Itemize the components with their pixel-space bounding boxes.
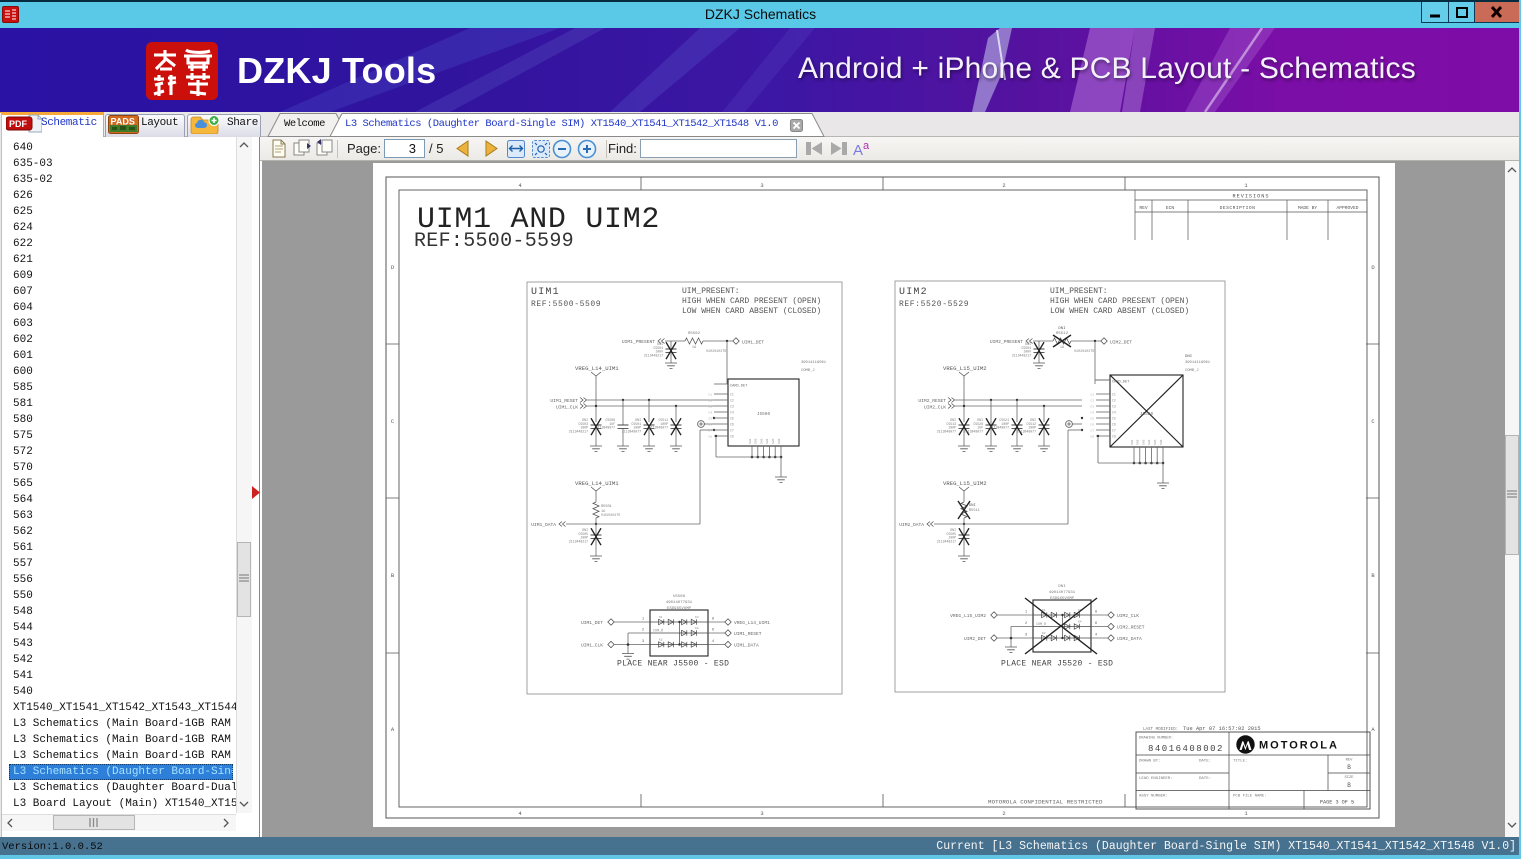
svg-text:K4: K4	[1078, 621, 1082, 624]
svg-text:COMB_J: COMB_J	[1185, 369, 1199, 373]
svg-text:SH5: SH5	[1154, 439, 1157, 445]
svg-text:SH1: SH1	[1131, 439, 1134, 445]
svg-text:39014119061: 39014119061	[1185, 361, 1211, 365]
svg-text:K2: K2	[1042, 632, 1046, 635]
svg-text:D: D	[1371, 264, 1375, 271]
svg-text:C6: C6	[730, 423, 734, 427]
svg-text:Tue Apr 07 16:57:02 2015: Tue Apr 07 16:57:02 2015	[1183, 726, 1261, 732]
svg-text:TITLE:: TITLE:	[1233, 760, 1247, 764]
svg-text:a: a	[863, 140, 870, 152]
svg-text:DNI: DNI	[1058, 585, 1065, 589]
svg-text:2: 2	[1025, 622, 1028, 626]
svg-text:MADE BY: MADE BY	[1298, 205, 1318, 211]
svg-text:2113948077: 2113948077	[964, 429, 983, 433]
svg-text:1: 1	[1244, 810, 1248, 817]
svg-text:B: B	[1347, 764, 1351, 771]
svg-text:C1: C1	[1112, 393, 1116, 397]
svg-text:2: 2	[1002, 810, 1005, 817]
svg-text:K2: K2	[659, 639, 663, 642]
svg-text:C2: C2	[1112, 399, 1116, 403]
svg-text:3: 3	[1025, 634, 1028, 638]
svg-text:2113948077: 2113948077	[990, 426, 1009, 430]
svg-text:J5520: J5520	[1140, 412, 1154, 417]
svg-text:UIM1_DET: UIM1_DET	[742, 340, 764, 346]
svg-text:ECN: ECN	[1166, 205, 1175, 211]
svg-text:C4: C4	[708, 411, 712, 414]
svg-text:04020402TR: 04020402TR	[706, 350, 726, 354]
svg-text:DATE:: DATE:	[1199, 760, 1211, 764]
svg-text:K1: K1	[659, 616, 663, 619]
svg-text:C2: C2	[708, 399, 712, 402]
svg-text:C1: C1	[708, 393, 712, 396]
svg-text:SH2: SH2	[755, 438, 758, 444]
svg-text:C5: C5	[708, 417, 712, 420]
svg-text:39014119061: 39014119061	[801, 361, 827, 365]
svg-text:C8: C8	[1090, 435, 1094, 438]
svg-text:49014077931: 49014077931	[666, 601, 693, 605]
svg-text:SH3: SH3	[760, 438, 763, 444]
svg-text:UIM2_PRESENT: UIM2_PRESENT	[990, 339, 1023, 345]
svg-text:1: 1	[642, 618, 645, 622]
svg-text:04020402TR: 04020402TR	[1074, 350, 1094, 354]
svg-text:4: 4	[518, 182, 522, 189]
svg-text:C5: C5	[730, 417, 734, 421]
svg-text:C: C	[1371, 418, 1375, 425]
svg-text:04020402TR: 04020402TR	[601, 513, 620, 517]
svg-text:C5: C5	[1112, 417, 1116, 421]
svg-text:2113948077: 2113948077	[1017, 429, 1036, 433]
svg-text:APPROVED: APPROVED	[1336, 205, 1358, 211]
svg-text:UIM2_RESET: UIM2_RESET	[1117, 625, 1145, 631]
svg-text:UIM2_CLK: UIM2_CLK	[1117, 613, 1139, 619]
svg-text:HIGH WHEN CARD PRESENT (OPEN): HIGH WHEN CARD PRESENT (OPEN)	[682, 297, 821, 306]
svg-text:SH5: SH5	[772, 438, 775, 444]
svg-text:UIM1_CLK: UIM1_CLK	[581, 643, 603, 649]
svg-text:REF:5500-5509: REF:5500-5509	[531, 300, 601, 309]
svg-text:2113948077: 2113948077	[622, 429, 641, 433]
svg-text:UIM1_DATA: UIM1_DATA	[734, 643, 759, 649]
svg-text:R5502: R5502	[688, 332, 701, 336]
svg-text:2: 2	[642, 629, 645, 633]
svg-text:PDF: PDF	[9, 119, 28, 129]
svg-text:C6: C6	[708, 423, 712, 426]
svg-text:DRAWING NUMBER:: DRAWING NUMBER:	[1139, 737, 1173, 741]
svg-text:C7: C7	[730, 429, 734, 433]
svg-text:UIM1_RESET: UIM1_RESET	[550, 398, 578, 404]
svg-text:REF:5500-5599: REF:5500-5599	[414, 230, 574, 253]
svg-text:2113948077: 2113948077	[649, 426, 668, 430]
svg-text:PLACE NEAR J5500 - ESD: PLACE NEAR J5500 - ESD	[617, 660, 729, 669]
svg-text:B: B	[1371, 572, 1375, 579]
svg-text:UIM2: UIM2	[899, 287, 928, 298]
svg-text:C7: C7	[1112, 429, 1116, 433]
svg-text:DESCRIPTION: DESCRIPTION	[1220, 205, 1256, 211]
svg-text:84016408002: 84016408002	[1148, 744, 1224, 754]
svg-text:2113448217: 2113448217	[1012, 353, 1031, 357]
svg-text:2113448217: 2113448217	[569, 429, 588, 433]
svg-text:CARD_DET: CARD_DET	[730, 384, 748, 388]
svg-text:D: D	[391, 264, 395, 271]
svg-text:2113948077: 2113948077	[937, 429, 956, 433]
svg-text:C8: C8	[708, 435, 712, 438]
svg-text:REVISIONS: REVISIONS	[1232, 194, 1269, 200]
svg-text:SH4: SH4	[1148, 439, 1151, 445]
svg-text:LAST MODIFIED:: LAST MODIFIED:	[1143, 728, 1178, 732]
svg-text:6: 6	[1095, 622, 1098, 626]
svg-text:C8: C8	[1112, 435, 1116, 439]
svg-text:8: 8	[1095, 611, 1098, 615]
svg-text:C3: C3	[708, 405, 712, 408]
svg-text:2113948077: 2113948077	[596, 426, 615, 430]
svg-text:A: A	[391, 726, 395, 733]
svg-text:2113448217: 2113448217	[569, 539, 588, 543]
svg-text:4: 4	[1095, 634, 1098, 638]
svg-text:UIM1: UIM1	[531, 287, 560, 298]
svg-text:C4: C4	[1112, 411, 1116, 415]
svg-text:VREG_L14_UIM1: VREG_L14_UIM1	[575, 480, 619, 487]
svg-text:SIZE: SIZE	[1344, 776, 1354, 780]
svg-text:VREG_L14_UIM1: VREG_L14_UIM1	[734, 620, 770, 626]
svg-text:MOTOROLA: MOTOROLA	[1259, 740, 1339, 752]
svg-text:K4: K4	[695, 627, 699, 630]
svg-text:UIM2_RESET: UIM2_RESET	[918, 398, 946, 404]
svg-text:VREG_L15_UIM2: VREG_L15_UIM2	[950, 613, 986, 619]
svg-text:3: 3	[642, 640, 645, 644]
svg-text:UIM1_RESET: UIM1_RESET	[734, 631, 762, 637]
svg-text:PLACE NEAR J5520 - ESD: PLACE NEAR J5520 - ESD	[1001, 660, 1113, 669]
svg-text:C1: C1	[1090, 393, 1094, 396]
svg-text:UIM1_DET: UIM1_DET	[581, 620, 603, 626]
svg-text:UIM_PRESENT:: UIM_PRESENT:	[1050, 287, 1108, 296]
svg-text:2113448217: 2113448217	[644, 353, 663, 357]
svg-text:DNI: DNI	[1185, 355, 1192, 359]
svg-text:C8: C8	[730, 435, 734, 439]
svg-text:1: 1	[1244, 182, 1248, 189]
svg-text:1A: 1A	[692, 346, 697, 350]
svg-text:PADS: PADS	[111, 117, 135, 127]
svg-text:C7: C7	[1090, 429, 1094, 432]
svg-text:3: 3	[760, 182, 763, 189]
svg-text:DNI: DNI	[969, 504, 976, 508]
svg-text:CARD_DET: CARD_DET	[1112, 380, 1130, 384]
svg-text:VREG_L14_UIM1: VREG_L14_UIM1	[575, 365, 619, 372]
svg-text:1A: 1A	[1060, 346, 1065, 350]
svg-text:49014077931: 49014077931	[1049, 591, 1076, 595]
svg-text:UIM2_DATA: UIM2_DATA	[1117, 636, 1142, 642]
svg-text:A: A	[853, 142, 863, 157]
svg-text:VREG_L15_UIM2: VREG_L15_UIM2	[943, 480, 987, 487]
svg-text:6: 6	[712, 629, 715, 633]
svg-text:PCB FILE NAME:: PCB FILE NAME:	[1233, 795, 1267, 799]
svg-text:U5508: U5508	[673, 595, 686, 599]
svg-text:HIGH WHEN CARD PRESENT (OPEN): HIGH WHEN CARD PRESENT (OPEN)	[1050, 297, 1189, 306]
svg-text:UIM2_DET: UIM2_DET	[1110, 340, 1132, 346]
svg-text:UIM2_CLK: UIM2_CLK	[924, 404, 946, 410]
svg-text:B: B	[1347, 782, 1351, 789]
svg-text:C4: C4	[1090, 411, 1094, 414]
svg-text:DRAWN BY:: DRAWN BY:	[1139, 760, 1161, 764]
svg-text:C2: C2	[1090, 399, 1094, 402]
svg-text:UIM1_CLK: UIM1_CLK	[556, 404, 578, 410]
svg-text:DNI: DNI	[1058, 327, 1065, 331]
svg-text:C1: C1	[730, 393, 734, 397]
svg-text:REF:5520-5529: REF:5520-5529	[899, 300, 969, 309]
svg-text:C3: C3	[1090, 405, 1094, 408]
svg-text:3: 3	[760, 810, 763, 817]
svg-text:UIM_PRESENT:: UIM_PRESENT:	[682, 287, 740, 296]
svg-text:SH1: SH1	[749, 438, 752, 444]
svg-text:C3: C3	[730, 405, 734, 409]
svg-text:C6: C6	[1090, 423, 1094, 426]
svg-text:LOW WHEN CARD ABSENT (CLOSED): LOW WHEN CARD ABSENT (CLOSED)	[1050, 307, 1189, 316]
svg-text:SH6: SH6	[778, 438, 781, 444]
svg-text:R5501: R5501	[601, 505, 612, 509]
svg-text:LEAD ENGINEER:: LEAD ENGINEER:	[1139, 777, 1173, 781]
svg-text:4: 4	[518, 810, 522, 817]
svg-text:K3: K3	[695, 616, 699, 619]
svg-text:R5512: R5512	[1056, 332, 1069, 336]
svg-text:SH3: SH3	[1142, 439, 1145, 445]
svg-text:SH2: SH2	[1137, 439, 1140, 445]
svg-text:UIM2_DET: UIM2_DET	[964, 636, 986, 642]
svg-text:MOTOROLA CONFIDENTIAL RESTRICT: MOTOROLA CONFIDENTIAL RESTRICTED	[988, 799, 1103, 806]
svg-text:DATE:: DATE:	[1199, 777, 1211, 781]
svg-text:C2: C2	[730, 399, 734, 403]
svg-text:COMB_J: COMB_J	[801, 369, 815, 373]
svg-text:J5500: J5500	[757, 412, 771, 417]
svg-text:C: C	[391, 418, 395, 425]
svg-text:2: 2	[1002, 182, 1005, 189]
svg-text:UIM2_DATA: UIM2_DATA	[899, 522, 924, 528]
svg-text:UIM1_DATA: UIM1_DATA	[531, 522, 556, 528]
svg-text:C5: C5	[1090, 417, 1094, 420]
svg-text:SH4: SH4	[766, 438, 769, 444]
svg-text:B: B	[391, 572, 395, 579]
svg-text:C4: C4	[730, 411, 734, 415]
svg-text:UIM1_PRESENT: UIM1_PRESENT	[622, 339, 655, 345]
svg-text:A: A	[1371, 726, 1375, 733]
svg-text:R5511: R5511	[969, 509, 980, 513]
svg-text:LOW WHEN CARD ABSENT (CLOSED): LOW WHEN CARD ABSENT (CLOSED)	[682, 307, 821, 316]
svg-text:REV: REV	[1139, 205, 1148, 211]
svg-text:8: 8	[712, 618, 715, 622]
svg-text:PAGE 3 OF 5: PAGE 3 OF 5	[1320, 800, 1354, 806]
svg-text:SH6: SH6	[1160, 439, 1163, 445]
svg-text:4: 4	[712, 640, 715, 644]
svg-text:C6: C6	[1112, 423, 1116, 427]
svg-text:C3: C3	[1112, 405, 1116, 409]
svg-text:2113448217: 2113448217	[937, 539, 956, 543]
svg-text:REV: REV	[1346, 759, 1354, 763]
svg-text:VREG_L15_UIM2: VREG_L15_UIM2	[943, 365, 987, 372]
svg-text:1: 1	[1025, 611, 1028, 615]
svg-text:ASSY NUMBER:: ASSY NUMBER:	[1139, 795, 1168, 799]
